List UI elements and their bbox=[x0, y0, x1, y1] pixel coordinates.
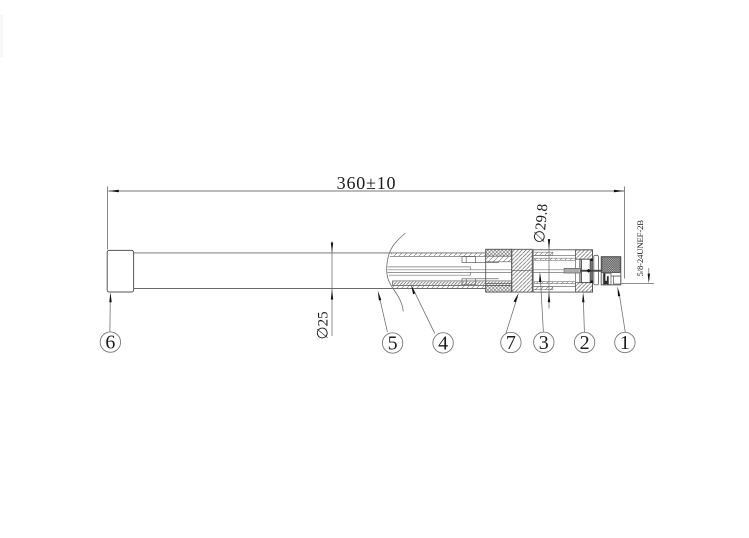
svg-text:6: 6 bbox=[105, 332, 115, 354]
svg-text:7: 7 bbox=[506, 332, 516, 354]
svg-text:5/8-24UNEF-2B: 5/8-24UNEF-2B bbox=[635, 220, 645, 277]
svg-text:360±10: 360±10 bbox=[337, 173, 397, 193]
svg-text:∅25: ∅25 bbox=[315, 311, 331, 339]
svg-text:5: 5 bbox=[388, 333, 398, 355]
svg-text:∅29.8: ∅29.8 bbox=[532, 203, 551, 244]
svg-text:1: 1 bbox=[620, 332, 630, 354]
svg-text:2: 2 bbox=[580, 332, 590, 354]
svg-text:4: 4 bbox=[438, 332, 448, 354]
svg-text:3: 3 bbox=[539, 332, 549, 354]
